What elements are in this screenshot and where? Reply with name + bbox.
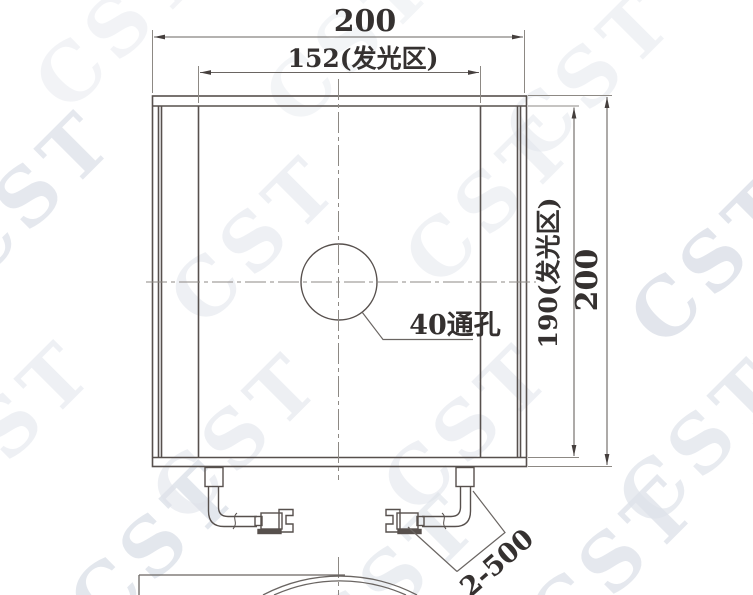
dim-overall-width-label: 200	[334, 4, 397, 39]
connector-left	[205, 468, 293, 534]
dimension-luminous-width: 152(发光区)	[199, 44, 481, 103]
connector-right-block	[456, 468, 474, 487]
connector-left-cable-outer	[209, 487, 258, 527]
technical-drawing: 200 152(发光区) 190(发光区) 200 40通孔	[0, 0, 753, 595]
connector-right-cable-inner	[422, 487, 461, 517]
drawing-sheet: CSTCSTCSTCSTCSTCSTCSTCSTCSTCSTCSTCSTCSTC…	[0, 0, 753, 595]
side-view-partial	[139, 575, 417, 595]
cable-callout: 2-500	[408, 491, 540, 595]
dim-luminous-height-label: 190(发光区)	[534, 198, 563, 349]
cable-label: 2-500	[455, 523, 541, 595]
connector-left-block	[205, 468, 223, 487]
panel-front-view	[153, 96, 527, 467]
leader-line	[408, 527, 457, 572]
connector-right-cable-outer	[422, 487, 471, 527]
connector-right-plug	[386, 510, 424, 534]
connector-left-plug	[255, 510, 293, 534]
hole-label: 40通孔	[409, 310, 501, 341]
dim-overall-height-label: 200	[570, 249, 605, 312]
dim-luminous-width-label: 152(发光区)	[288, 44, 439, 73]
connector-left-cable-inner	[219, 487, 258, 517]
side-view-dome-outer-arc	[263, 576, 417, 595]
through-hole-callout: 40通孔	[362, 310, 501, 341]
connector-right	[386, 468, 474, 534]
panel-outline	[153, 96, 527, 467]
